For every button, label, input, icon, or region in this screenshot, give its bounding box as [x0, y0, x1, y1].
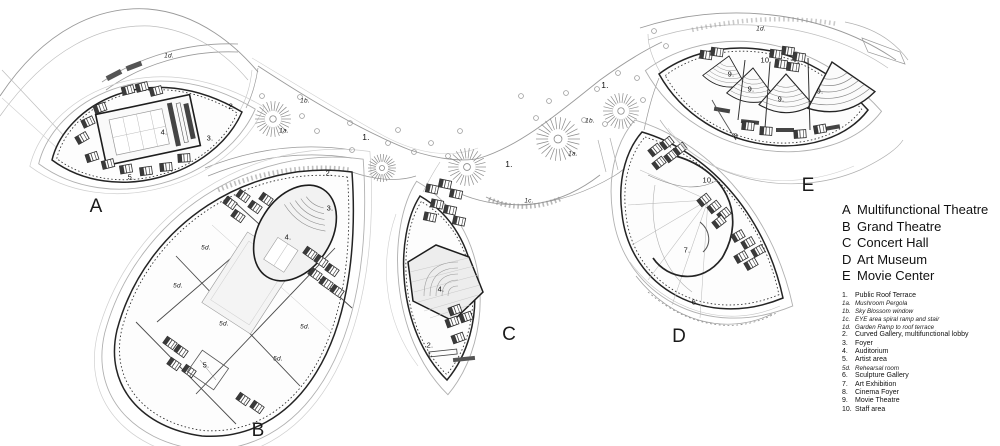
legend-item-number: 3. — [842, 340, 855, 348]
legend-item-label: Sculpture Gallery — [855, 372, 909, 380]
legend-building-list: AMultifunctional TheatreBGrand TheatreCC… — [842, 202, 999, 285]
plan-label-1d: 1d. — [164, 53, 174, 60]
legend-building-D: DArt Museum — [842, 252, 999, 269]
sky-blossom-window-icon — [458, 129, 463, 134]
plan-label-1a: 1a. — [279, 128, 289, 135]
plan-label-1d: 1d. — [756, 26, 766, 33]
legend-item-number: 4. — [842, 348, 855, 356]
legend-building-letter: E — [842, 268, 857, 285]
legend-building-name: Concert Hall — [857, 235, 929, 252]
band-decorations — [255, 29, 668, 186]
building-d-art-museum — [611, 120, 793, 325]
plan-label-5: 5. — [203, 361, 210, 370]
legend-item-8: 8.Cinema Foyer — [842, 389, 999, 397]
plan-label-1: 1. — [601, 80, 609, 90]
sky-blossom-window-icon — [429, 141, 434, 146]
legend-item-label: Garden Ramp to roof terrace — [855, 324, 934, 332]
legend-item-number: 1. — [842, 292, 855, 300]
building-letter-E: E — [802, 175, 815, 197]
legend-item-4: 4.Auditorium — [842, 348, 999, 356]
plan-label-4: 4. — [438, 285, 445, 294]
legend-building-letter: D — [842, 252, 857, 269]
plan-label-3: 3. — [327, 204, 334, 213]
sky-blossom-window-icon — [396, 128, 401, 133]
legend-building-letter: B — [842, 219, 857, 236]
legend-building-name: Grand Theatre — [857, 219, 941, 236]
legend-item-2: 2.Curved Gallery, multifunctional lobby — [842, 331, 999, 339]
legend-item-1c: 1c.EYE area spiral ramp and stair — [842, 316, 999, 324]
building-letter-B: B — [252, 420, 265, 442]
legend: AMultifunctional TheatreBGrand TheatreCC… — [842, 202, 999, 414]
legend-item-label: Artist area — [855, 356, 887, 364]
plan-label-6: 6. — [692, 298, 699, 307]
plan-label-3: 3. — [207, 134, 214, 143]
plan-label-2: 2. — [229, 102, 236, 111]
legend-item-list: 1.Public Roof Terrace1a.Mushroom Pergola… — [842, 292, 999, 414]
sky-blossom-window-icon — [386, 141, 391, 146]
legend-item-number: 6. — [842, 372, 855, 380]
legend-item-label: Foyer — [855, 340, 873, 348]
legend-building-name: Art Museum — [857, 252, 927, 269]
legend-item-6: 6.Sculpture Gallery — [842, 372, 999, 380]
legend-item-number: 1d. — [842, 324, 855, 332]
legend-item-label: Movie Theatre — [855, 397, 900, 405]
legend-item-label: Art Exhibition — [855, 381, 896, 389]
plan-label-9: 9. — [748, 85, 755, 94]
legend-item-label: Curved Gallery, multifunctional lobby — [855, 331, 968, 339]
plan-label-1: 1. — [505, 159, 513, 169]
building-letter-D: D — [672, 326, 686, 348]
plan-label-9: 9. — [817, 87, 824, 96]
legend-building-C: CConcert Hall — [842, 235, 999, 252]
legend-item-number: 10. — [842, 406, 855, 414]
legend-item-number: 2. — [842, 331, 855, 339]
legend-building-E: EMovie Center — [842, 268, 999, 285]
legend-building-B: BGrand Theatre — [842, 219, 999, 236]
plan-label-2: 2. — [427, 341, 434, 350]
sky-blossom-window-icon — [260, 94, 265, 99]
sky-blossom-window-icon — [664, 44, 669, 49]
legend-item-label: Cinema Foyer — [855, 389, 899, 397]
legend-item-5d: 5d.Rehearsal room — [842, 365, 999, 373]
legend-item-number: 5d. — [842, 365, 855, 373]
plan-label-1: 1. — [362, 132, 370, 142]
sky-blossom-window-icon — [547, 99, 552, 104]
legend-item-1d: 1d.Garden Ramp to roof terrace — [842, 324, 999, 332]
plan-label-10: 10. — [760, 56, 771, 65]
building-b-grand-theatre — [94, 149, 371, 446]
plan-label-7: 7. — [684, 246, 691, 255]
legend-item-label: Mushroom Pergola — [855, 300, 907, 308]
sky-blossom-window-icon — [446, 154, 451, 159]
sky-blossom-window-icon — [564, 91, 569, 96]
legend-building-letter: A — [842, 202, 857, 219]
legend-item-1: 1.Public Roof Terrace — [842, 292, 999, 300]
legend-item-number: 7. — [842, 381, 855, 389]
plan-label-5: 5. — [128, 173, 135, 182]
legend-building-letter: C — [842, 235, 857, 252]
plan-label-9: 9. — [778, 95, 785, 104]
plan-label-4: 4. — [285, 233, 292, 242]
legend-item-label: Public Roof Terrace — [855, 292, 916, 300]
legend-item-number: 1a. — [842, 300, 855, 308]
plan-label-5d: 5d. — [300, 324, 310, 331]
plan-label-4: 4. — [161, 128, 168, 137]
legend-item-7: 7.Art Exhibition — [842, 381, 999, 389]
legend-item-label: Staff area — [855, 406, 885, 414]
building-letter-A: A — [90, 196, 103, 218]
plan-label-2: 2. — [326, 169, 333, 178]
sky-blossom-window-icon — [595, 87, 600, 92]
plan-label-10: 10. — [702, 176, 713, 185]
legend-item-number: 9. — [842, 397, 855, 405]
legend-item-label: Auditorium — [855, 348, 888, 356]
plan-label-5d: 5d. — [273, 356, 283, 363]
plan-label-1a: 1a. — [568, 151, 578, 158]
legend-item-label: Sky Blossom window — [855, 308, 913, 316]
plan-label-5d: 5d. — [201, 245, 211, 252]
legend-item-1b: 1b.Sky Blossom window — [842, 308, 999, 316]
mushroom-pergola-icon — [448, 148, 486, 186]
sky-blossom-window-icon — [300, 114, 305, 119]
mushroom-pergola-icon — [603, 93, 639, 129]
building-letter-C: C — [502, 324, 516, 346]
plan-label-1b: 1b. — [300, 98, 310, 105]
legend-item-5: 5.Artist area — [842, 356, 999, 364]
legend-item-label: Rehearsal room — [855, 365, 899, 373]
legend-building-A: AMultifunctional Theatre — [842, 202, 999, 219]
legend-item-10: 10.Staff area — [842, 406, 999, 414]
plan-label-5d: 5d. — [173, 283, 183, 290]
sky-blossom-window-icon — [315, 129, 320, 134]
legend-item-number: 8. — [842, 389, 855, 397]
building-a-multifunctional-theatre — [30, 77, 264, 194]
sky-blossom-window-icon — [635, 76, 640, 81]
building-c-concert-hall — [386, 179, 483, 395]
plan-label-1b: 1b. — [585, 118, 595, 125]
legend-item-9: 9.Movie Theatre — [842, 397, 999, 405]
sky-blossom-window-icon — [534, 116, 539, 121]
plan-label-5d: 5d. — [219, 321, 229, 328]
legend-item-3: 3.Foyer — [842, 340, 999, 348]
legend-item-number: 1c. — [842, 316, 855, 324]
sky-blossom-window-icon — [641, 98, 646, 103]
legend-building-name: Multifunctional Theatre — [857, 202, 988, 219]
sky-blossom-window-icon — [603, 122, 608, 127]
plan-label-1c: 1c. — [524, 198, 533, 205]
plan-label-9: 9. — [728, 70, 735, 79]
sky-blossom-window-icon — [616, 71, 621, 76]
legend-item-number: 1b. — [842, 308, 855, 316]
legend-item-number: 5. — [842, 356, 855, 364]
legend-item-1a: 1a.Mushroom Pergola — [842, 300, 999, 308]
sky-blossom-window-icon — [652, 29, 657, 34]
legend-item-label: EYE area spiral ramp and stair — [855, 316, 939, 324]
sky-blossom-window-icon — [519, 94, 524, 99]
plan-label-8: 8. — [734, 132, 741, 141]
site-plan-page: 1d.2.3.4.5.1a.1b.1.2.3.4.5d.5d.5d.5d.5d.… — [0, 0, 1000, 446]
legend-building-name: Movie Center — [857, 268, 934, 285]
